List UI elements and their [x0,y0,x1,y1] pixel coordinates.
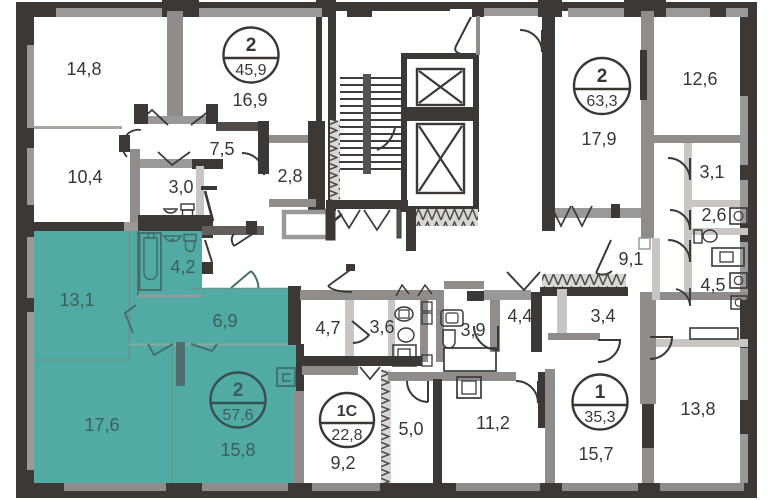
svg-text:1: 1 [595,382,606,403]
svg-text:1С: 1С [337,403,358,420]
svg-text:7,5: 7,5 [209,139,234,159]
svg-text:3,0: 3,0 [168,177,193,197]
svg-text:45,9: 45,9 [235,62,266,79]
svg-text:4,4: 4,4 [507,306,532,326]
svg-text:3,1: 3,1 [699,162,724,182]
svg-text:11,2: 11,2 [476,413,510,433]
svg-text:16,9: 16,9 [232,90,267,110]
svg-text:4,7: 4,7 [315,318,340,338]
svg-text:10,4: 10,4 [67,167,102,187]
svg-text:35,3: 35,3 [584,409,615,426]
svg-text:15,7: 15,7 [578,444,613,464]
svg-text:3,6: 3,6 [369,317,394,337]
svg-text:12,6: 12,6 [682,69,717,89]
svg-text:9,1: 9,1 [618,249,643,269]
svg-text:57,6: 57,6 [222,407,253,424]
svg-text:22,8: 22,8 [331,427,362,444]
svg-text:4,2: 4,2 [170,257,195,277]
svg-text:13,1: 13,1 [59,290,94,310]
svg-text:2: 2 [246,35,257,56]
svg-text:17,6: 17,6 [84,415,119,435]
svg-text:17,9: 17,9 [581,129,616,149]
svg-text:6,9: 6,9 [212,311,237,331]
svg-text:2,8: 2,8 [277,166,302,186]
svg-text:2,6: 2,6 [701,205,726,225]
svg-text:4,5: 4,5 [700,275,725,295]
svg-text:63,3: 63,3 [586,93,617,110]
svg-text:9,2: 9,2 [330,453,355,473]
svg-text:15,8: 15,8 [220,440,255,460]
svg-text:3,9: 3,9 [460,320,485,340]
svg-text:2: 2 [597,66,608,87]
svg-text:13,8: 13,8 [680,399,715,419]
svg-text:5,0: 5,0 [398,419,423,439]
svg-text:2: 2 [233,380,244,401]
svg-text:3,4: 3,4 [590,306,615,326]
svg-text:14,8: 14,8 [66,59,101,79]
